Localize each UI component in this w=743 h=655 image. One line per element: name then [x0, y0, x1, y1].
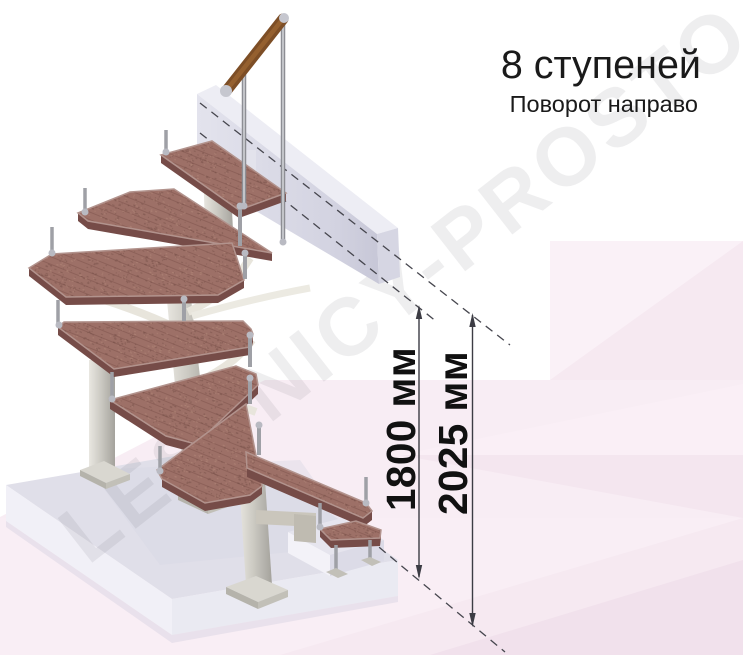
svg-text:1800 мм: 1800 мм	[378, 347, 424, 511]
svg-text:Поворот направо: Поворот направо	[510, 91, 698, 117]
svg-text:8 ступеней: 8 ступеней	[501, 43, 701, 87]
svg-text:2025 мм: 2025 мм	[430, 351, 476, 515]
